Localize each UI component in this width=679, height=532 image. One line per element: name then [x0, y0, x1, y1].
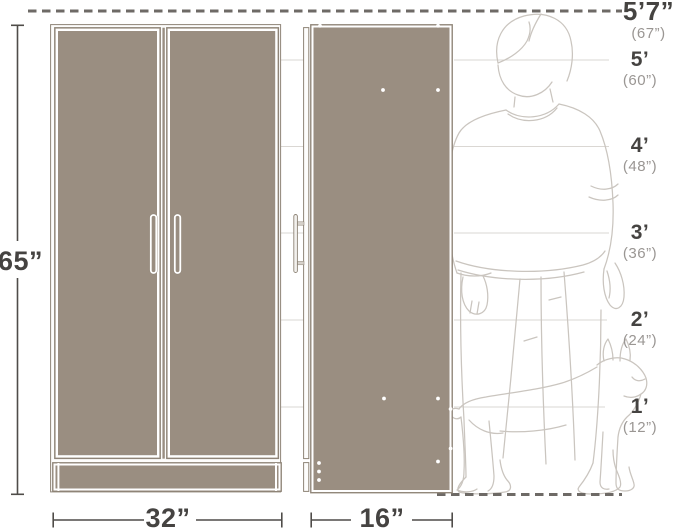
side-panel: [311, 25, 453, 493]
cabinet-front-view: [51, 25, 282, 492]
left-door-handle: [150, 214, 157, 274]
dimension-diagram: 65” 32” 16” 5’7” (67”) 5’ (60”) 4’ (48”)…: [0, 0, 679, 532]
height-marker-label: 5’7”: [618, 0, 679, 24]
height-marker-sub-label: (60”): [611, 73, 669, 89]
height-marker-sub-label: (36”): [611, 246, 669, 262]
height-marker-sub-label: (48”): [611, 159, 669, 175]
height-marker-5ft7: 5’7” (67”): [618, 0, 679, 42]
height-marker-4ft: 4’ (48”): [611, 135, 669, 175]
height-marker-label: 2’: [611, 309, 669, 331]
door-gap-divider: [163, 28, 165, 458]
cabinet-side-view: [294, 24, 453, 493]
left-door: [55, 28, 161, 459]
depth-dimension-label: 16”: [352, 503, 412, 532]
height-marker-label: 3’: [611, 222, 669, 244]
person-silhouette-icon: [448, 14, 624, 494]
height-marker-3ft: 3’ (36”): [611, 222, 669, 262]
height-marker-2ft: 2’ (24”): [611, 309, 669, 349]
height-dimension-label: 65”: [0, 246, 42, 277]
base-kickplate: [53, 463, 282, 492]
right-door: [167, 28, 279, 459]
height-marker-5ft: 5’ (60”): [611, 49, 669, 89]
width-dimension-label: 32”: [138, 503, 198, 532]
side-door-edge: [304, 28, 309, 459]
height-marker-sub-label: (12”): [611, 420, 669, 436]
height-marker-label: 5’: [611, 49, 669, 71]
side-base-edge: [304, 463, 309, 492]
height-marker-sub-label: (24”): [611, 333, 669, 349]
height-marker-sub-label: (67”): [618, 26, 679, 42]
height-marker-label: 4’: [611, 135, 669, 157]
diagram-art: [0, 0, 679, 532]
side-handle: [294, 215, 304, 273]
height-marker-label: 1’: [611, 396, 669, 418]
height-marker-1ft: 1’ (12”): [611, 396, 669, 436]
right-door-handle: [174, 214, 181, 274]
